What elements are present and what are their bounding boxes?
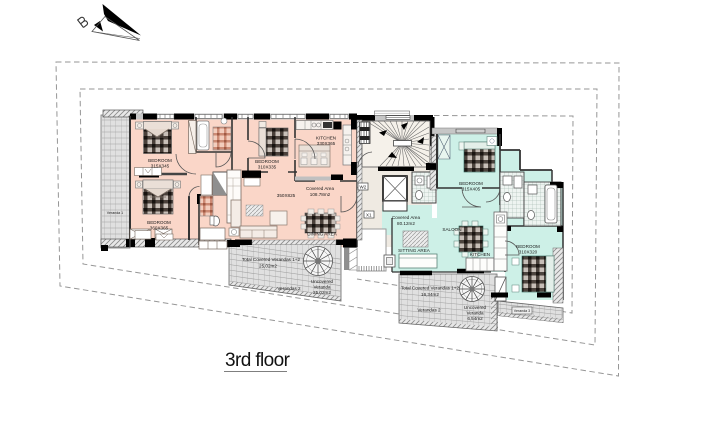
svg-text:DINING AREA: DINING AREA: [307, 232, 338, 237]
svg-text:3rd floor: 3rd floor: [225, 350, 291, 371]
svg-text:315X345: 315X345: [151, 164, 170, 169]
svg-text:KITCHEN: KITCHEN: [316, 136, 336, 141]
svg-text:KITCHEN: KITCHEN: [470, 252, 490, 257]
svg-text:SITTING AREA: SITTING AREA: [398, 248, 431, 253]
svg-text:315X405: 315X405: [462, 187, 481, 192]
svg-text:310X320: 310X320: [519, 250, 538, 255]
svg-text:BEDROOM: BEDROOM: [147, 220, 171, 225]
svg-text:BEDROOM: BEDROOM: [255, 159, 279, 164]
svg-text:Covered Area: Covered Area: [392, 215, 421, 220]
svg-text:Verandas 2: Verandas 2: [277, 286, 301, 291]
svg-text:16,34m2: 16,34m2: [421, 292, 439, 297]
svg-text:X1: X1: [366, 213, 372, 218]
svg-text:360X365: 360X365: [150, 226, 169, 231]
svg-text:Uncovered: Uncovered: [464, 305, 487, 310]
svg-text:Total Covered Verandas 1+2: Total Covered Verandas 1+2: [242, 257, 301, 262]
svg-text:Veranda 1: Veranda 1: [107, 211, 123, 215]
svg-text:80.12m2: 80.12m2: [397, 221, 415, 226]
svg-text:350X825: 350X825: [277, 193, 296, 198]
svg-text:Total Covered Verandas 1+2: Total Covered Verandas 1+2: [401, 286, 460, 291]
svg-text:330X365: 330X365: [317, 141, 336, 146]
svg-text:Veranda: Veranda: [313, 285, 331, 290]
svg-text:BEDROOM: BEDROOM: [459, 181, 483, 186]
svg-text:310X335: 310X335: [258, 165, 277, 170]
svg-text:BEDROOM: BEDROOM: [148, 158, 172, 163]
svg-text:Verandas 2: Verandas 2: [417, 308, 441, 313]
svg-text:25,02m2: 25,02m2: [313, 290, 331, 295]
svg-text:25,02m2: 25,02m2: [259, 264, 277, 269]
svg-text:SALOON: SALOON: [442, 227, 461, 232]
svg-text:108.78m2: 108.78m2: [310, 192, 331, 197]
svg-text:Covered Area: Covered Area: [306, 186, 335, 191]
svg-text:Veranda: Veranda: [466, 311, 484, 316]
svg-text:W2: W2: [360, 185, 367, 190]
svg-text:Uncovered: Uncovered: [311, 279, 334, 284]
svg-text:BEDROOM: BEDROOM: [516, 244, 540, 249]
svg-text:Veranda 3: Veranda 3: [514, 309, 530, 313]
svg-text:6,54m2: 6,54m2: [467, 316, 483, 321]
